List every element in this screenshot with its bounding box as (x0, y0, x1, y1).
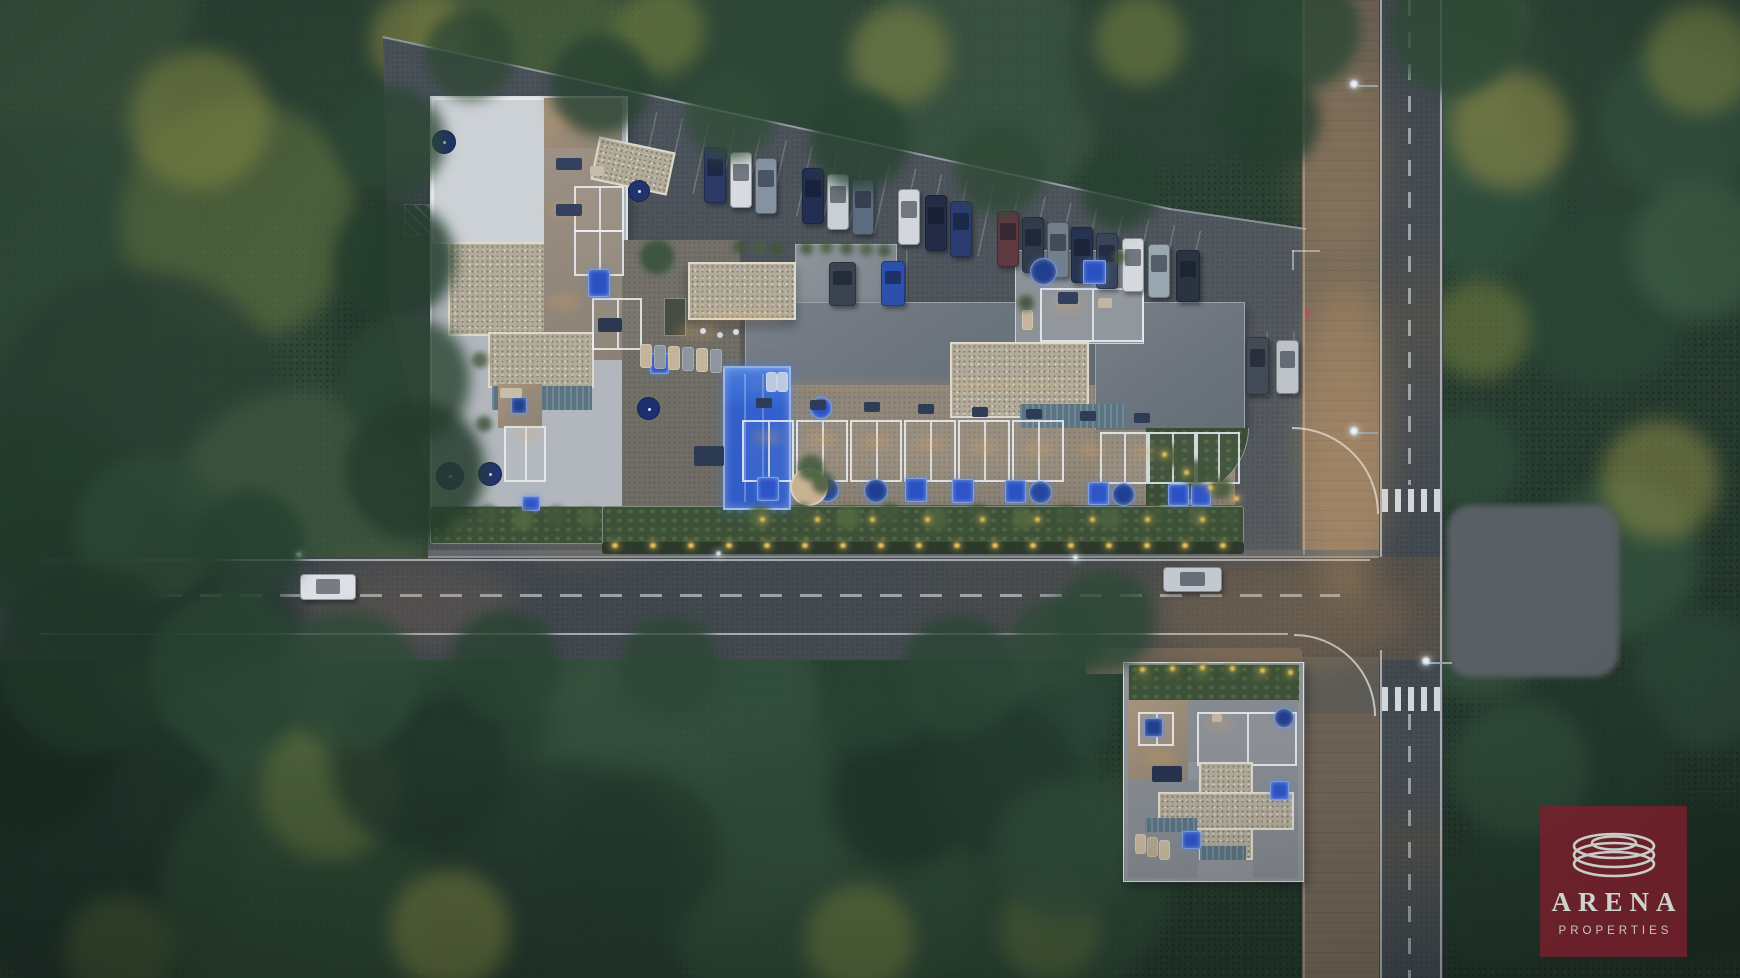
warm (676, 324, 718, 338)
glow (1230, 666, 1235, 671)
glow (916, 543, 922, 548)
bush (1056, 505, 1076, 525)
pool-sq (757, 477, 779, 501)
warm (970, 441, 998, 452)
pool-sq (1005, 480, 1026, 503)
lounger (654, 345, 666, 369)
sidewalk-right-lower (1302, 712, 1379, 978)
canopy (280, 610, 420, 750)
glow (1200, 665, 1205, 670)
glow (878, 543, 884, 548)
lounger (1135, 834, 1146, 854)
pergola-frame (742, 420, 794, 482)
canopy (900, 615, 1020, 735)
umbrella (628, 180, 650, 202)
canopy (1080, 150, 1160, 230)
table (918, 404, 934, 414)
pool-round (1029, 481, 1052, 504)
bush (752, 241, 766, 255)
pool-sq (905, 478, 927, 502)
bush (836, 506, 860, 530)
glow (1162, 452, 1167, 457)
lounger (766, 372, 777, 392)
canopy (620, 615, 720, 715)
car (802, 168, 824, 224)
table (500, 388, 522, 398)
bush (1012, 508, 1034, 530)
bush (812, 472, 834, 494)
car (881, 261, 905, 306)
bush (640, 240, 674, 274)
bush (472, 352, 488, 368)
pergola-frame (850, 420, 902, 482)
warm (548, 296, 580, 308)
canopy (1055, 570, 1155, 670)
pergola-frame (1100, 432, 1148, 484)
canopy (345, 400, 485, 540)
glow (870, 517, 875, 522)
lounger (682, 347, 694, 371)
table (556, 158, 582, 170)
glow (764, 543, 770, 548)
table (756, 398, 772, 408)
table (1080, 411, 1096, 421)
entrance-gate-line-h (1292, 250, 1320, 252)
warm (748, 382, 1092, 388)
bush (968, 504, 988, 524)
car (1176, 250, 1200, 302)
canopy (450, 610, 560, 720)
glow (1200, 517, 1205, 522)
bush (578, 508, 598, 528)
tree (390, 870, 510, 978)
pool-sq (1083, 260, 1106, 284)
table (1026, 409, 1042, 419)
car (730, 152, 752, 208)
pool-sq (952, 479, 974, 503)
tree (995, 780, 1135, 920)
glow (1035, 517, 1040, 522)
glow (1260, 668, 1265, 673)
pergola-frame (1040, 288, 1144, 342)
table (864, 402, 880, 412)
glow (1170, 666, 1175, 671)
canopy (425, 10, 515, 100)
canopy (955, 125, 1045, 215)
lounger (640, 344, 652, 368)
glow (760, 517, 765, 522)
glow (1288, 670, 1293, 675)
lounger (696, 348, 708, 372)
entrance-gate-line-v (1292, 250, 1294, 270)
pool-round (1030, 258, 1057, 285)
glow (1145, 517, 1150, 522)
warm (1078, 445, 1106, 456)
bush (878, 244, 891, 257)
pool-sq (1144, 718, 1163, 737)
glow (802, 543, 808, 548)
car (300, 574, 356, 600)
light-patch (1300, 280, 1390, 600)
dot (1305, 309, 1309, 317)
umbrella (637, 397, 660, 420)
lounger (777, 372, 788, 392)
glow (992, 543, 998, 548)
table (1152, 766, 1182, 782)
glow (925, 517, 930, 522)
warm (1146, 752, 1176, 764)
table (694, 446, 724, 466)
streetlight-arm (1358, 85, 1378, 87)
pool-round (864, 479, 888, 503)
building-a-gravel-roof-2 (488, 332, 594, 388)
pool-sq (1270, 781, 1289, 800)
table (1058, 292, 1078, 304)
glow (688, 543, 694, 548)
glow (1068, 543, 1074, 548)
table (1098, 298, 1112, 308)
glow (1220, 543, 1226, 548)
bush (792, 503, 812, 523)
side-road-dashed-line-lower (1408, 714, 1411, 978)
glow (612, 543, 618, 548)
bush (1222, 509, 1238, 525)
table (590, 166, 604, 176)
villa-tile-canopy-1 (1145, 818, 1197, 832)
arena-rings-icon (1566, 826, 1662, 880)
crosswalk-lower (1382, 687, 1440, 711)
bush (1112, 250, 1126, 264)
pool-sq (1088, 482, 1109, 505)
building-a-gravel-roof-1 (448, 242, 548, 336)
table (972, 407, 988, 417)
dot (700, 328, 706, 334)
pool-sq (1168, 484, 1189, 506)
glow (840, 543, 846, 548)
bush (840, 242, 853, 255)
dot (733, 329, 739, 335)
lounger (1022, 310, 1033, 330)
forest-clearing-pad (1447, 505, 1619, 677)
canopy (335, 200, 455, 320)
bush (770, 242, 784, 256)
warm (916, 438, 944, 449)
bush (1250, 667, 1268, 685)
brand-tagline: PROPERTIES (1555, 925, 1673, 937)
dot (717, 332, 723, 338)
glow (1140, 667, 1145, 672)
glow (1208, 485, 1213, 490)
pool-round (1112, 483, 1135, 506)
glow (726, 543, 732, 548)
glow (1030, 543, 1036, 548)
car (1122, 238, 1144, 292)
car (898, 189, 920, 245)
glow (716, 551, 721, 556)
warm (516, 428, 542, 438)
car (1276, 340, 1299, 394)
villa-tile-canopy-2 (1200, 846, 1246, 860)
streetlight-arm (1428, 662, 1452, 664)
crosswalk-upper (1382, 489, 1440, 512)
car (1163, 567, 1222, 592)
bush (733, 240, 747, 254)
table (556, 204, 582, 216)
warm (808, 434, 836, 445)
bush (820, 241, 833, 254)
car (1246, 337, 1269, 395)
car (755, 158, 777, 214)
glow (1350, 80, 1358, 88)
arena-properties-logo: ARENA PROPERTIES (1540, 806, 1687, 957)
car (997, 211, 1019, 267)
table (1212, 714, 1222, 722)
canopy (1220, 70, 1320, 170)
tree (130, 50, 270, 190)
glow (1234, 496, 1239, 501)
bush (860, 243, 873, 256)
glow (954, 543, 960, 548)
glow (815, 517, 820, 522)
canopy (550, 35, 650, 135)
canopy (195, 490, 305, 600)
tree (1430, 280, 1530, 380)
canopy (335, 85, 445, 195)
car (925, 195, 947, 251)
glow (1350, 427, 1358, 435)
car (829, 262, 856, 306)
glow (980, 517, 985, 522)
table (598, 318, 622, 332)
building-a-white-roof (432, 98, 548, 244)
pool-round (1274, 708, 1294, 728)
table (810, 400, 826, 410)
pool-sq (1182, 831, 1201, 849)
bush (512, 509, 534, 531)
bush (1155, 444, 1179, 468)
pergola-frame (904, 420, 956, 482)
table (1134, 413, 1150, 423)
tree (560, 770, 720, 930)
canopy (685, 70, 775, 160)
lounger (1159, 840, 1170, 860)
streetlight-arm (1358, 432, 1378, 434)
glow (1090, 517, 1095, 522)
glow (1184, 470, 1189, 475)
bush (546, 506, 566, 526)
bush (1018, 295, 1034, 311)
lounger (668, 346, 680, 370)
villa-garden-strip (1128, 664, 1300, 702)
lounger (1147, 837, 1158, 857)
warm (692, 312, 788, 320)
aerial-render: ARENA PROPERTIES (0, 0, 1740, 978)
glow (1182, 543, 1188, 548)
warm (1024, 443, 1052, 454)
pool-sq (588, 269, 610, 297)
glow (1422, 657, 1430, 665)
bush (880, 503, 900, 523)
bush (476, 416, 492, 432)
brand-name: ARENA (1544, 887, 1682, 918)
car (1148, 244, 1170, 298)
scene-objects (0, 0, 1740, 978)
lounger (710, 349, 722, 373)
bush (478, 505, 498, 525)
glow (1144, 543, 1150, 548)
bush (1100, 508, 1122, 530)
side-road-east-line (1440, 0, 1442, 978)
bush (1210, 477, 1232, 499)
glow (1073, 555, 1078, 560)
canopy (810, 90, 910, 190)
warm (862, 436, 890, 447)
warm (754, 432, 782, 443)
car (950, 201, 972, 257)
bush (800, 242, 813, 255)
glow (650, 543, 656, 548)
pool-sq (511, 397, 527, 414)
glow (1106, 543, 1112, 548)
